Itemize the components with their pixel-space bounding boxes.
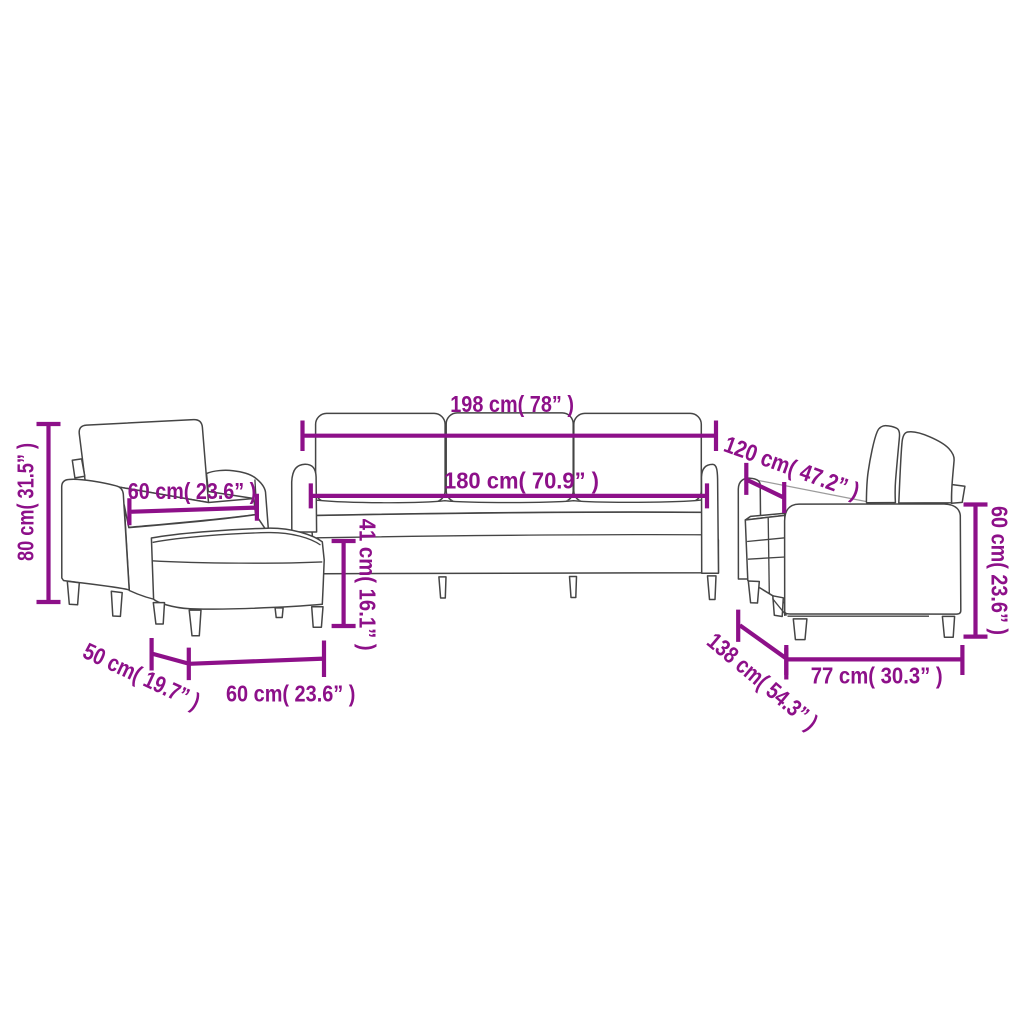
- svg-text:198 cm( 78” ): 198 cm( 78” ): [450, 391, 574, 417]
- svg-text:180 cm( 70.9” ): 180 cm( 70.9” ): [444, 467, 599, 493]
- svg-text:41 cm( 16.1” ): 41 cm( 16.1” ): [355, 519, 381, 651]
- svg-text:60 cm( 23.6” ): 60 cm( 23.6” ): [128, 478, 257, 504]
- svg-text:77 cm( 30.3” ): 77 cm( 30.3” ): [811, 663, 943, 689]
- svg-text:80 cm( 31.5” ): 80 cm( 31.5” ): [13, 443, 39, 561]
- svg-text:60 cm( 23.6” ): 60 cm( 23.6” ): [987, 506, 1013, 635]
- svg-text:60 cm( 23.6” ): 60 cm( 23.6” ): [226, 680, 356, 706]
